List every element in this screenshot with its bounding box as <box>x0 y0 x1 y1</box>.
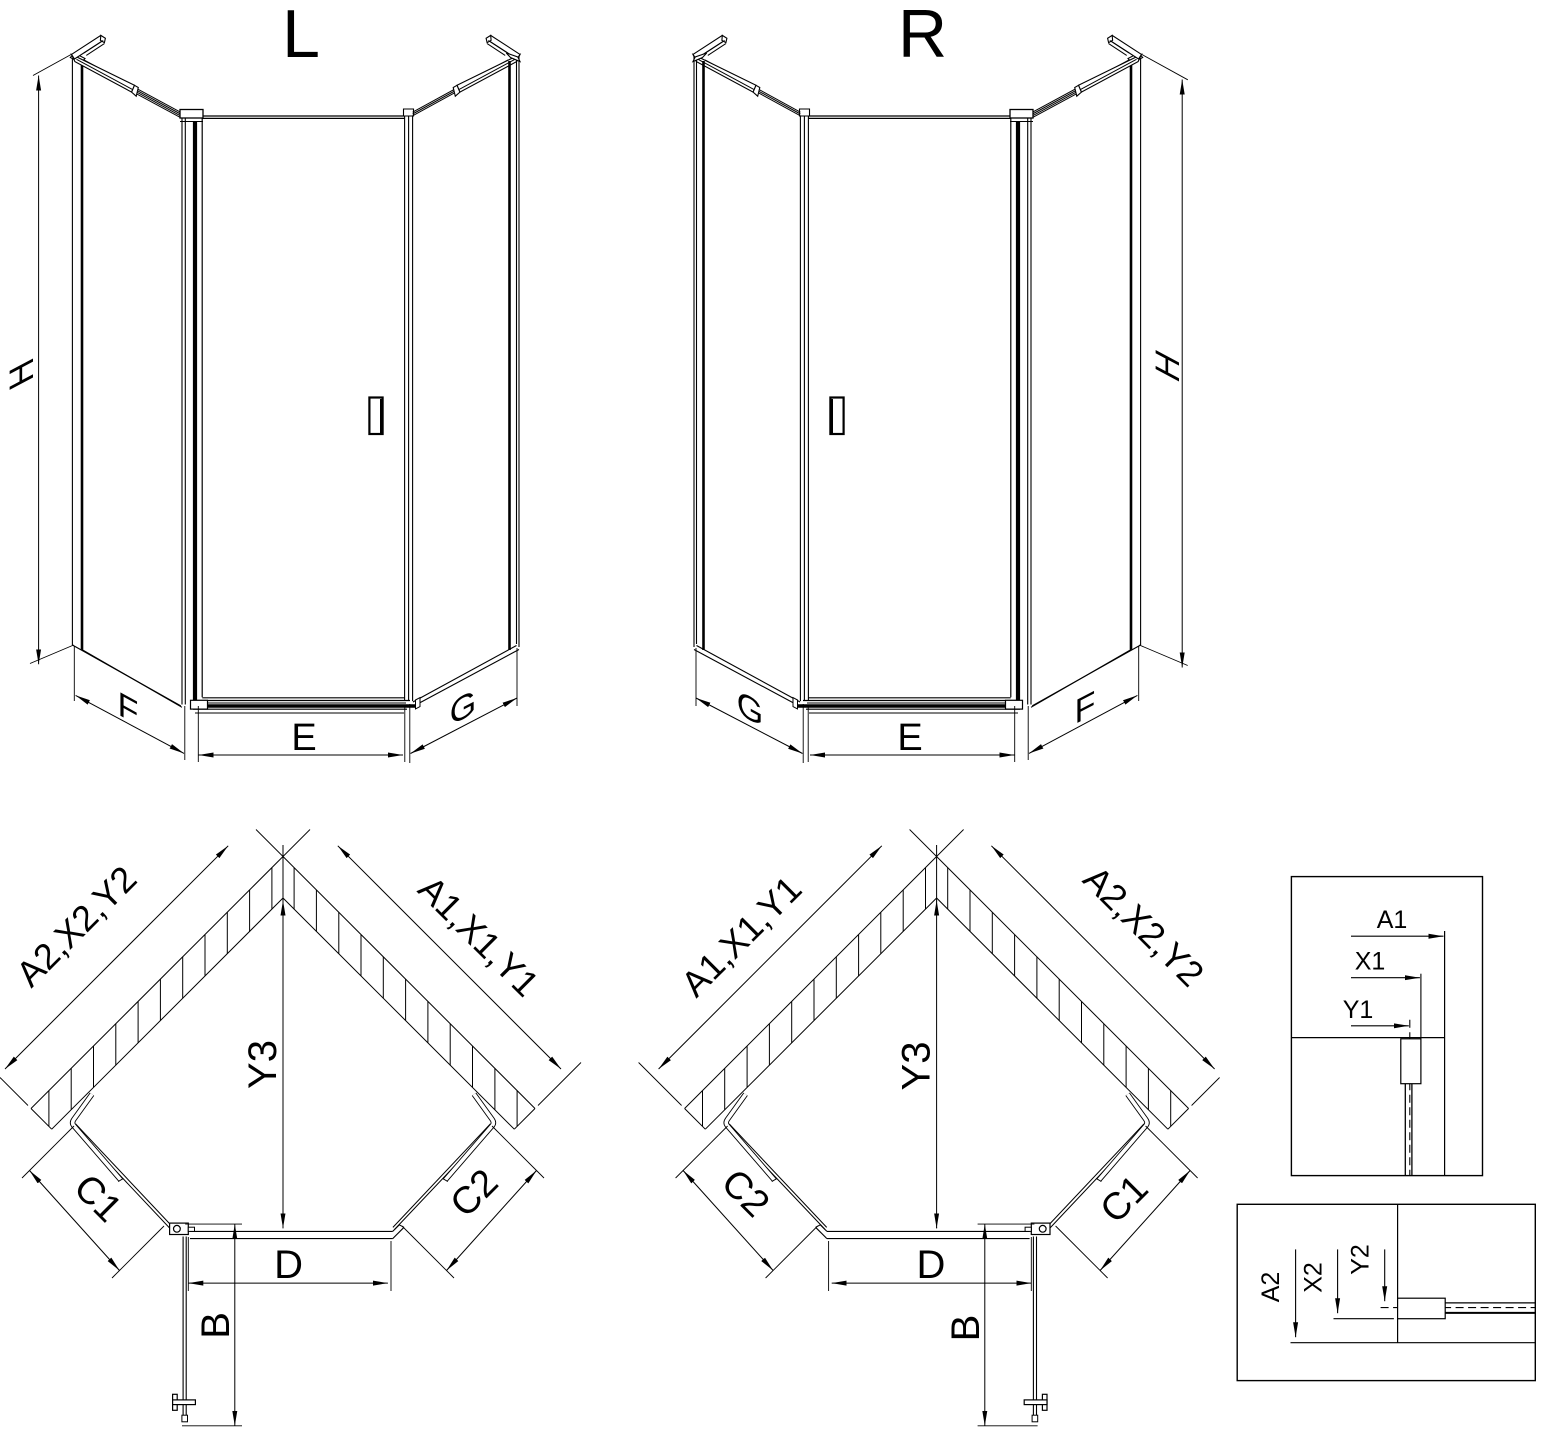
svg-text:D: D <box>917 1243 946 1287</box>
svg-text:R: R <box>898 0 947 72</box>
svg-text:E: E <box>897 717 922 759</box>
svg-text:E: E <box>291 717 316 759</box>
svg-text:D: D <box>274 1243 303 1287</box>
svg-text:Y1: Y1 <box>1343 996 1374 1024</box>
svg-text:L: L <box>282 0 320 72</box>
svg-text:A1: A1 <box>1377 906 1408 934</box>
svg-text:Y3: Y3 <box>895 1042 939 1091</box>
svg-text:A2: A2 <box>1257 1272 1285 1303</box>
svg-text:X1: X1 <box>1355 948 1386 976</box>
svg-text:Y2: Y2 <box>1347 1244 1375 1275</box>
svg-text:X2: X2 <box>1300 1262 1328 1293</box>
svg-text:Y3: Y3 <box>241 1040 285 1089</box>
svg-text:B: B <box>944 1315 988 1342</box>
svg-text:B: B <box>194 1312 238 1339</box>
